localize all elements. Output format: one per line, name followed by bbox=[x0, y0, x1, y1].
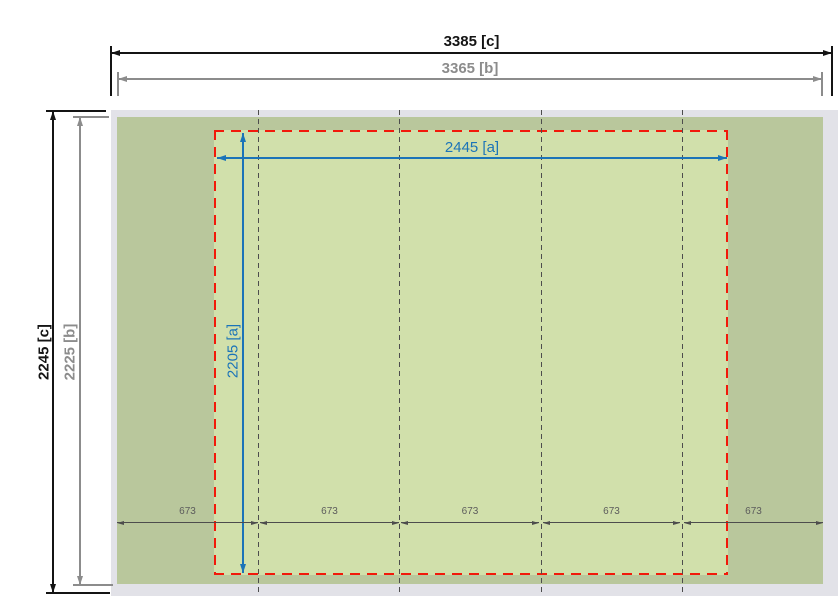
dim-outer-height-label: 2245 [c] bbox=[36, 324, 53, 380]
dim-middle-height-label: 2225 [b] bbox=[62, 324, 79, 381]
arrowhead-right bbox=[532, 521, 539, 525]
arrowhead-down bbox=[50, 584, 56, 593]
arrowhead-up bbox=[77, 117, 83, 126]
dim-spacing-label-2: 673 bbox=[260, 506, 399, 518]
inner-boundary-top bbox=[214, 130, 728, 132]
dim-middle-width-label: 3365 [b] bbox=[118, 60, 822, 77]
arrowhead-right bbox=[392, 521, 399, 525]
arrowhead-left bbox=[260, 521, 267, 525]
arrowhead-left bbox=[117, 521, 124, 525]
dim-inner-width-label: 2445 [a] bbox=[217, 139, 727, 156]
arrowhead-right bbox=[823, 50, 832, 56]
axis-divider-1 bbox=[258, 110, 259, 596]
dim-spacing-label-5: 673 bbox=[684, 506, 823, 518]
arrowhead-left bbox=[684, 521, 691, 525]
arrowhead-left bbox=[111, 50, 120, 56]
arrowhead-right bbox=[251, 521, 258, 525]
arrowhead-left bbox=[401, 521, 408, 525]
dim-spacing-label-3: 673 bbox=[401, 506, 539, 518]
technical-drawing-canvas: 3385 [c] 3365 [b] 2245 [c] 2225 [b] 2445… bbox=[0, 0, 838, 600]
axis-divider-4 bbox=[682, 110, 683, 596]
arrowhead-right bbox=[673, 521, 680, 525]
dim-inner-height-label: 2205 [a] bbox=[225, 324, 242, 378]
dim-spacing-label-4: 673 bbox=[543, 506, 680, 518]
axis-divider-2 bbox=[399, 110, 400, 596]
arrowhead-down bbox=[240, 564, 246, 573]
arrowhead-up bbox=[240, 133, 246, 142]
dim-spacing-label-1: 673 bbox=[117, 506, 258, 518]
axis-divider-3 bbox=[541, 110, 542, 596]
arrowhead-left bbox=[543, 521, 550, 525]
arrowhead-right bbox=[816, 521, 823, 525]
inner-boundary-bottom bbox=[214, 573, 728, 575]
dim-outer-width-label: 3385 [c] bbox=[111, 33, 832, 50]
arrowhead-down bbox=[77, 576, 83, 585]
arrowhead-up bbox=[50, 111, 56, 120]
